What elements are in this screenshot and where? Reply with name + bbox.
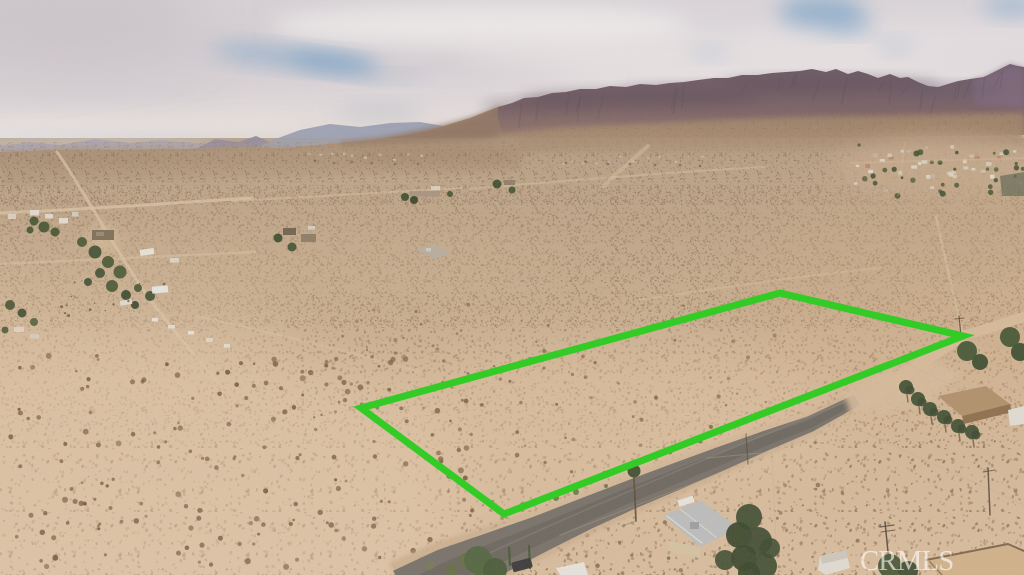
svg-text:CRMLS: CRMLS <box>860 546 954 575</box>
